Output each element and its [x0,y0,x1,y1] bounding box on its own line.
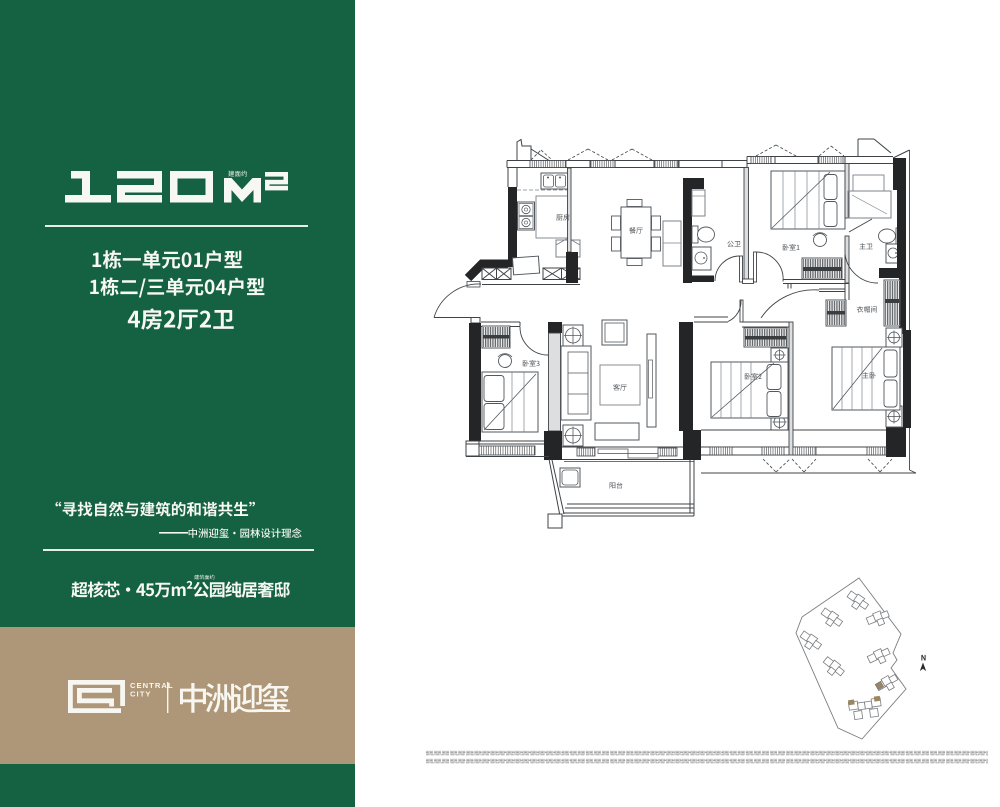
svg-text:CITY: CITY [130,690,152,699]
